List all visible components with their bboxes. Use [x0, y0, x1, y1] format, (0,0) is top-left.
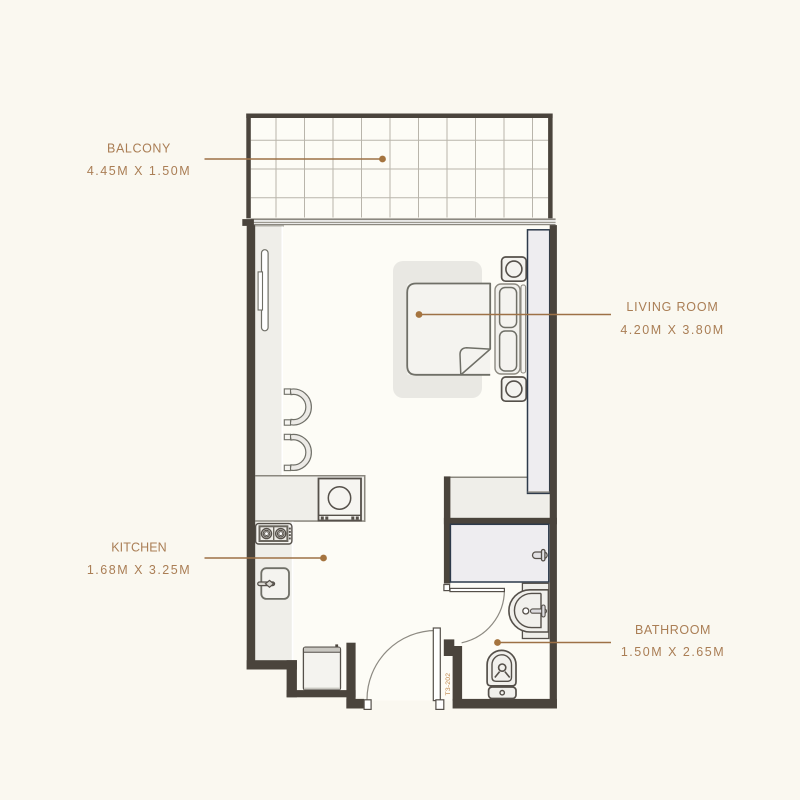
svg-text:LIVING ROOM: LIVING ROOM	[626, 300, 718, 314]
svg-text:1.68M X 3.25M: 1.68M X 3.25M	[87, 563, 191, 577]
svg-text:4.45M X 1.50M: 4.45M X 1.50M	[87, 164, 191, 178]
svg-text:1.50M X 2.65M: 1.50M X 2.65M	[621, 645, 725, 659]
svg-text:BALCONY: BALCONY	[107, 142, 171, 156]
svg-text:4.20M X 3.80M: 4.20M X 3.80M	[620, 323, 724, 337]
svg-text:KITCHEN: KITCHEN	[111, 540, 167, 554]
svg-text:BATHROOM: BATHROOM	[635, 623, 711, 637]
svg-text:T3-202: T3-202	[445, 673, 452, 696]
